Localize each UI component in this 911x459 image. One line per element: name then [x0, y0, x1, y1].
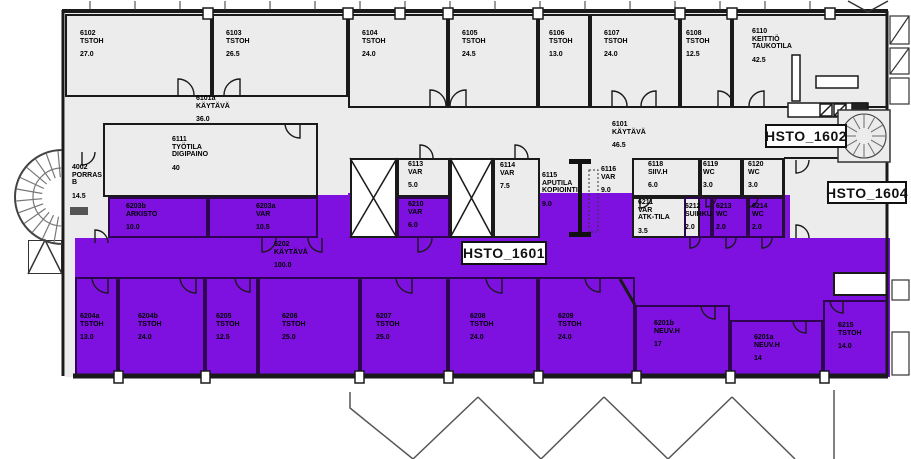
zone-label-HSTO_1602[interactable]: HSTO_1602 [765, 124, 847, 148]
zone-label-HSTO_1601[interactable]: HSTO_1601 [461, 241, 547, 265]
zone-label-HSTO_1604[interactable]: HSTO_1604 [827, 181, 907, 204]
zone-labels-layer: HSTO_1601HSTO_1602HSTO_1604 [0, 0, 911, 459]
floor-plan: 6102TSTOH27.06103TSTOH26.56104TSTOH24.06… [0, 0, 911, 459]
